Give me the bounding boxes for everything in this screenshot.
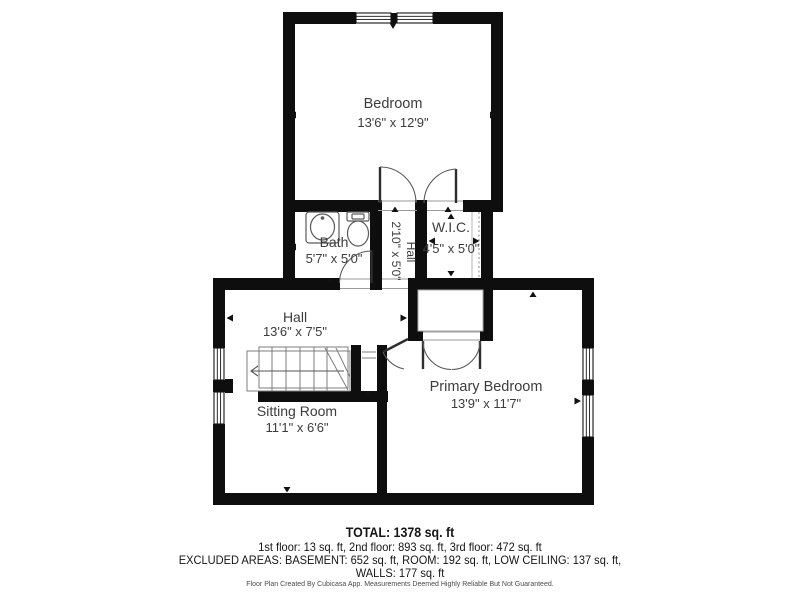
room-label-sitting-room: Sitting Room bbox=[257, 403, 337, 419]
double-door-icon bbox=[423, 341, 480, 370]
closet-entry-floor bbox=[418, 290, 483, 331]
toilet-icon bbox=[347, 212, 369, 246]
room-label-bedroom: Bedroom bbox=[364, 96, 423, 112]
room-label-hall: Hall bbox=[283, 309, 307, 325]
door-swing-icon bbox=[380, 167, 416, 203]
room-label-primary-bedroom: Primary Bedroom bbox=[430, 379, 543, 395]
floor-plan-page: Bedroom 13'6" x 12'9" Bath 5'7" x 5'0" 2… bbox=[0, 0, 800, 600]
wall-pilaster bbox=[225, 379, 233, 393]
total-area-text: TOTAL: 1378 sq. ft bbox=[32, 525, 768, 540]
room-dims-hall: 13'6" x 7'5" bbox=[263, 324, 327, 339]
disclaimer-text: Floor Plan Created By Cubicasa App. Meas… bbox=[0, 581, 800, 588]
window-icon bbox=[397, 13, 433, 23]
room-dims-bedroom: 13'6" x 12'9" bbox=[357, 115, 429, 130]
room-dims-hall-upper: 2'10" x 5'0" bbox=[389, 221, 403, 280]
window-icon bbox=[214, 348, 224, 380]
room-dims-wic: 4'5" x 5'0" bbox=[423, 241, 480, 256]
window-icon bbox=[356, 13, 391, 23]
room-label-bath: Bath bbox=[320, 234, 349, 250]
window-icon bbox=[583, 348, 593, 380]
floor-areas-text: 1st floor: 13 sq. ft, 2nd floor: 893 sq.… bbox=[32, 540, 768, 554]
room-label-wic: W.I.C. bbox=[432, 219, 470, 235]
room-label-hall-upper: Hall bbox=[404, 242, 418, 263]
room-dims-sitting-room: 11'1" x 6'6" bbox=[265, 420, 328, 435]
window-icon bbox=[214, 392, 224, 424]
window-mullion bbox=[391, 13, 397, 23]
window-icon bbox=[583, 395, 593, 437]
floor-plan-drawing: Bedroom 13'6" x 12'9" Bath 5'7" x 5'0" 2… bbox=[0, 0, 800, 520]
room-dims-bath: 5'7" x 5'0" bbox=[306, 251, 363, 266]
excluded-walls-text: WALLS: 177 sq. ft bbox=[32, 566, 768, 580]
door-swing-icon bbox=[424, 169, 456, 203]
excluded-areas-text: EXCLUDED AREAS: BASEMENT: 652 sq. ft, RO… bbox=[32, 553, 768, 567]
room-dims-primary-bedroom: 13'9" x 11'7" bbox=[451, 396, 522, 411]
